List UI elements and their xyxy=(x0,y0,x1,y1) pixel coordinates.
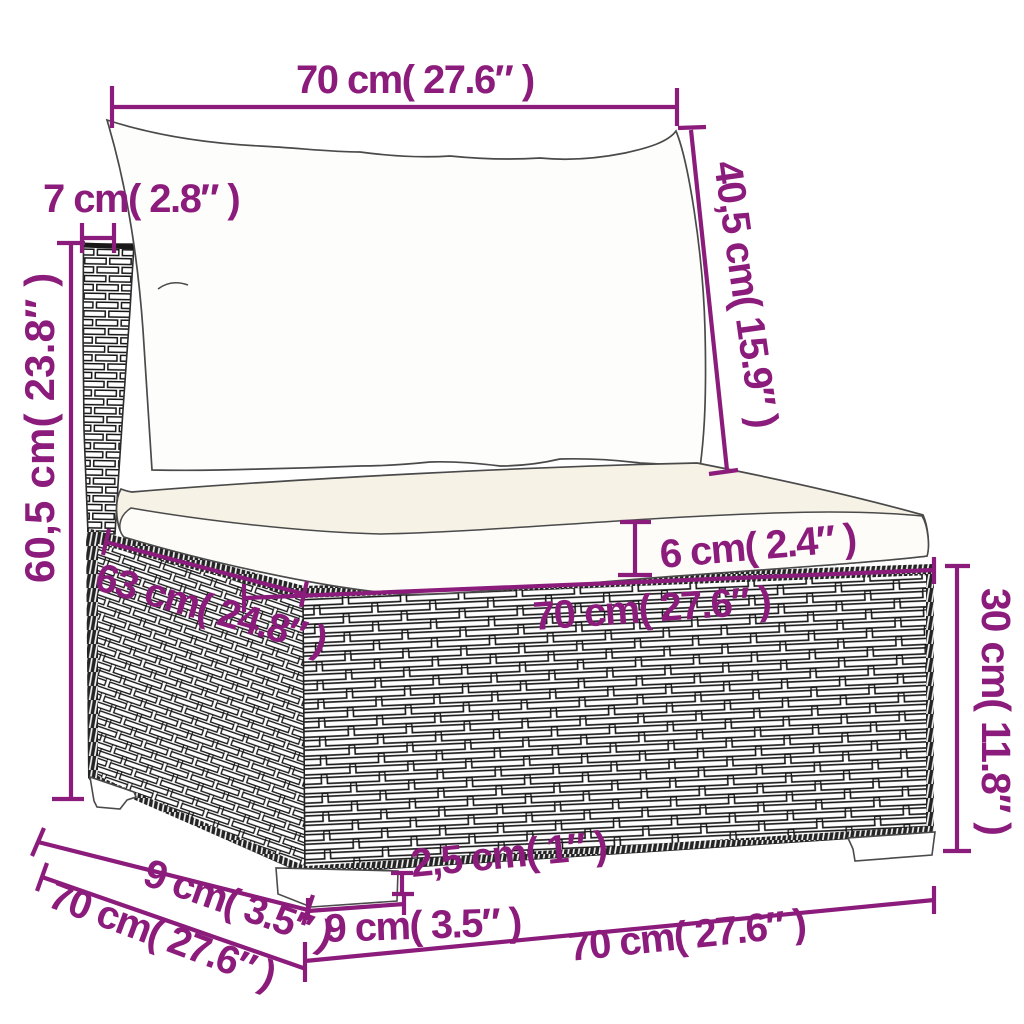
svg-text:7 cm( 2.8″ ): 7 cm( 2.8″ ) xyxy=(43,177,239,221)
svg-text:9 cm( 3.5″ ): 9 cm( 3.5″ ) xyxy=(324,900,522,951)
svg-text:70 cm( 27.6″ ): 70 cm( 27.6″ ) xyxy=(296,58,534,102)
svg-text:30 cm( 11.8″ ): 30 cm( 11.8″ ) xyxy=(973,588,1019,835)
svg-text:60,5 cm( 23.8″ ): 60,5 cm( 23.8″ ) xyxy=(16,273,63,584)
